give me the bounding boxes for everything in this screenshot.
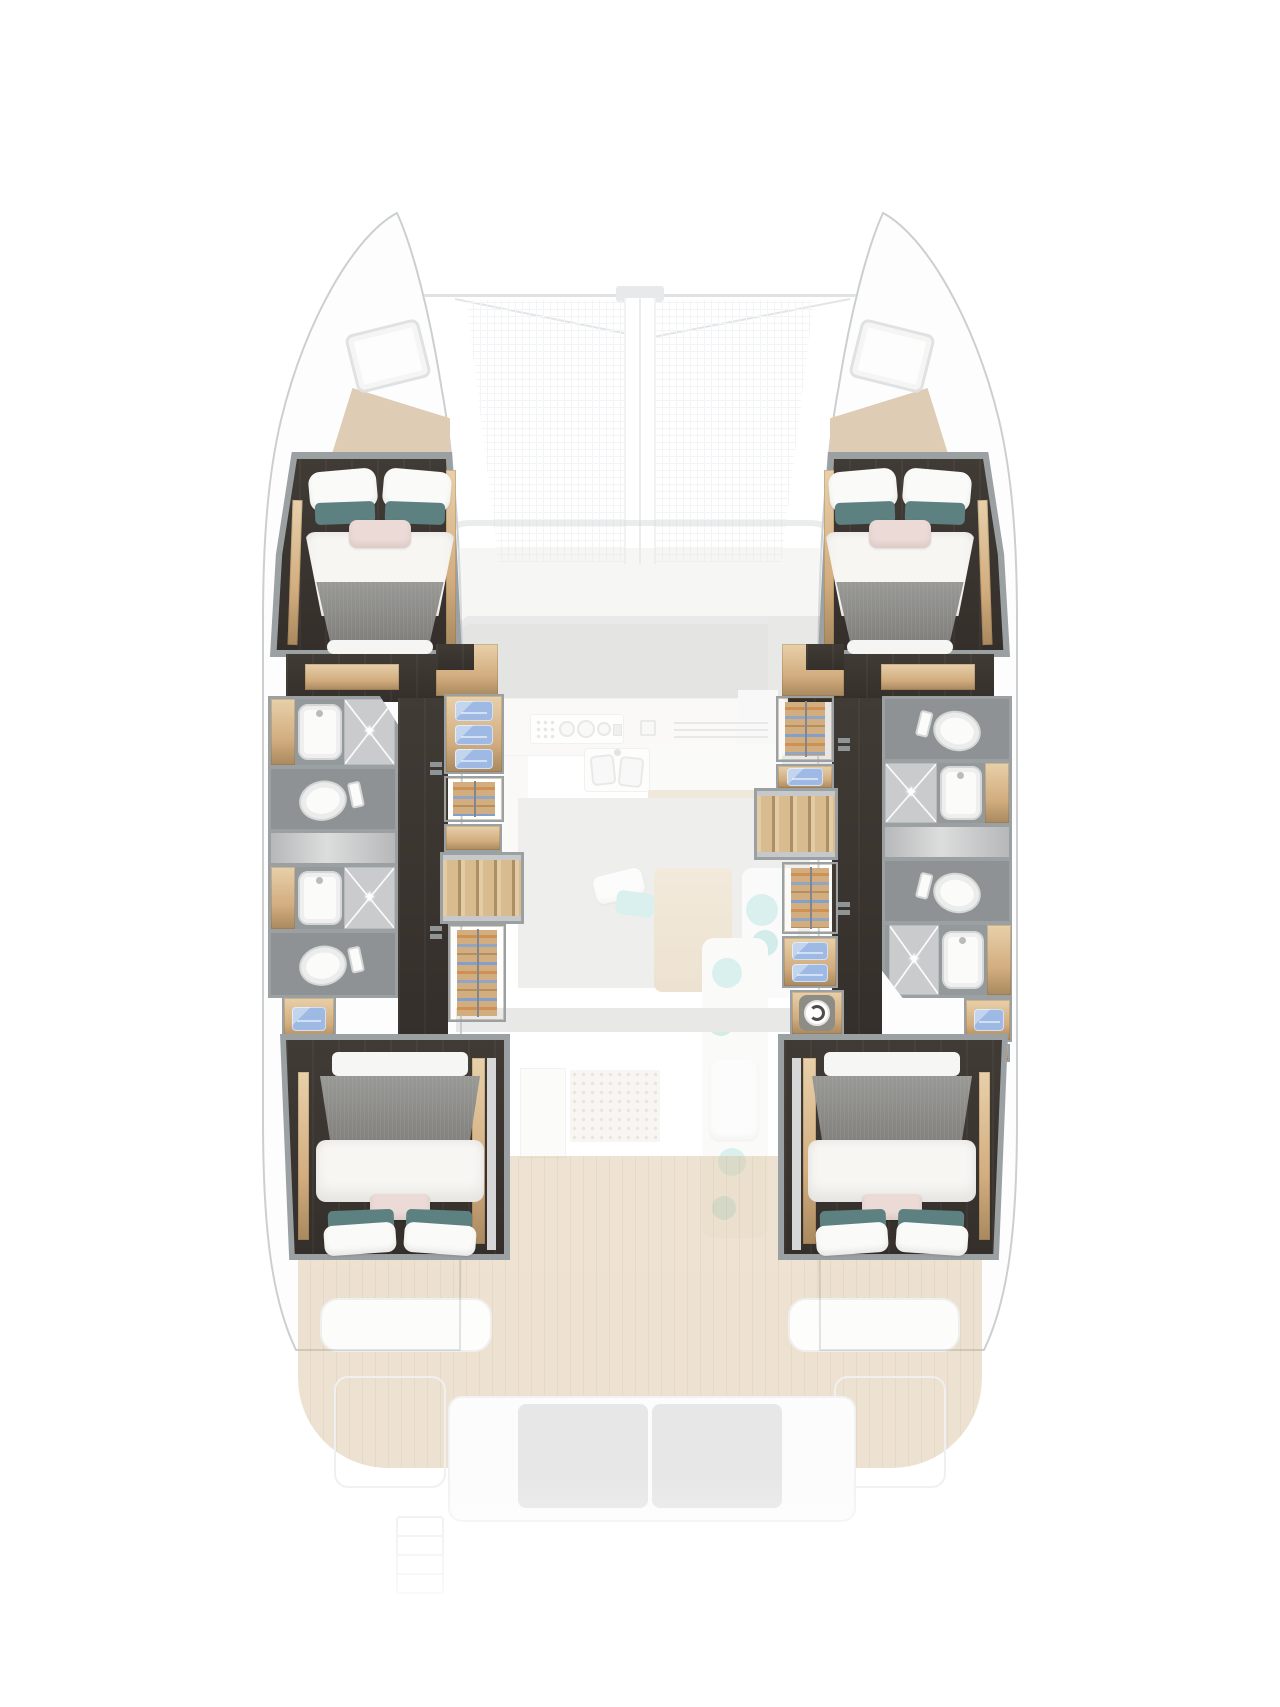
lower-deck-layer: [0, 0, 1280, 1707]
bed-pillow-blush: [869, 520, 931, 548]
sink: [940, 766, 982, 820]
aft-cabin-stbd-sidestep: [792, 1058, 801, 1250]
shower: [344, 867, 395, 929]
door-hinge: [430, 770, 442, 775]
bed-runner: [835, 582, 965, 644]
vanity-wood: [985, 763, 1009, 823]
towel: [792, 942, 828, 960]
catamaran-floorplan: [0, 0, 1280, 1707]
shower: [889, 925, 939, 995]
aft-cabin-port-trim: [298, 1072, 309, 1240]
bed-pillow-white: [815, 1222, 889, 1257]
toilet-bowl: [295, 776, 350, 825]
wardrobe-port-aft: [448, 924, 506, 1022]
aft-cabin-stbd-trim: [979, 1072, 990, 1240]
towel: [455, 701, 493, 721]
towel-shelves-port: [444, 694, 504, 774]
door-hinge: [430, 934, 442, 939]
sink: [298, 871, 342, 925]
wc-stbd-fwd: [882, 696, 1012, 762]
washing-machine-icon: [799, 995, 835, 1031]
toilet: [295, 771, 367, 829]
bathroom-stbd-aft: [882, 922, 1012, 998]
toilet-tank: [347, 946, 365, 974]
vanity-wood: [271, 867, 295, 929]
sink: [942, 931, 984, 989]
sink: [298, 704, 342, 760]
door-hinge: [430, 762, 442, 767]
towel-shelf-stbd: [776, 764, 834, 790]
toilet-bowl: [929, 706, 985, 756]
toilet-tank: [347, 781, 365, 809]
staircase-port: [440, 852, 524, 924]
washer-drum-icon: [804, 1000, 830, 1026]
towel: [455, 725, 493, 745]
fwd-cabin-stbd-bed: [825, 468, 975, 656]
ledge-stbd: [881, 664, 975, 690]
stern-fade: [0, 1478, 1280, 1707]
shower: [885, 763, 937, 823]
wc-port-aft: [268, 930, 398, 998]
towel: [787, 768, 823, 786]
wc-stbd-aft: [882, 858, 1012, 924]
aft-cabin-port-sidestep: [487, 1058, 496, 1250]
toilet: [295, 936, 367, 994]
toilet: [912, 862, 985, 922]
bed-pillow-white: [403, 1222, 477, 1257]
corner-notch-stbd: [806, 644, 844, 670]
bed-foot-bench: [847, 640, 953, 654]
door-hinge: [838, 910, 850, 915]
bathroom-port-aft: [268, 864, 398, 932]
bed-headboard: [824, 1052, 960, 1076]
vanity-wood: [987, 925, 1011, 995]
bed-pillow-white: [895, 1222, 969, 1257]
bed-pillow-blush: [349, 520, 411, 548]
towel-shelves-stbd: [782, 936, 838, 988]
toilet: [912, 700, 985, 760]
towel: [292, 1007, 326, 1031]
fwd-cabin-port-bed: [305, 468, 455, 656]
door-hinge: [838, 902, 850, 907]
bed-runner: [315, 582, 445, 644]
towel: [974, 1009, 1004, 1031]
towel: [455, 749, 493, 769]
corner-notch-port: [436, 644, 474, 670]
shower: [344, 699, 395, 765]
divider-panel-stbd: [882, 824, 1012, 860]
bed-duvet: [808, 1140, 976, 1202]
wardrobe-port-fwd: [444, 776, 504, 822]
bed-runner: [320, 1076, 480, 1148]
bed-duvet: [316, 1140, 484, 1202]
toilet-bowl: [295, 941, 350, 990]
aft-cabin-stbd-bed: [806, 1050, 978, 1254]
towel: [792, 964, 828, 982]
counter-port: [444, 824, 502, 852]
toilet-tank: [915, 872, 934, 900]
toilet-bowl: [929, 868, 985, 918]
staircase-stbd: [754, 788, 838, 860]
wardrobe-stbd-fwd: [776, 696, 834, 762]
bed-pillow-white: [323, 1222, 397, 1257]
ledge-port: [305, 664, 399, 690]
washing-machine-cabinet: [790, 990, 844, 1036]
vanity-wood: [271, 699, 295, 765]
aft-cabin-port-bed: [314, 1050, 486, 1254]
toilet-tank: [915, 710, 934, 738]
bed-headboard: [332, 1052, 468, 1076]
divider-panel-port: [268, 830, 398, 866]
wc-port-fwd: [268, 766, 398, 832]
bathroom-stbd-fwd: [882, 760, 1012, 826]
bed-runner: [812, 1076, 972, 1148]
wardrobe-stbd-aft: [782, 862, 838, 934]
door-hinge: [838, 746, 850, 751]
bed-foot-bench: [327, 640, 433, 654]
bathroom-port-fwd: [268, 696, 398, 768]
door-hinge: [838, 738, 850, 743]
door-hinge: [430, 926, 442, 931]
